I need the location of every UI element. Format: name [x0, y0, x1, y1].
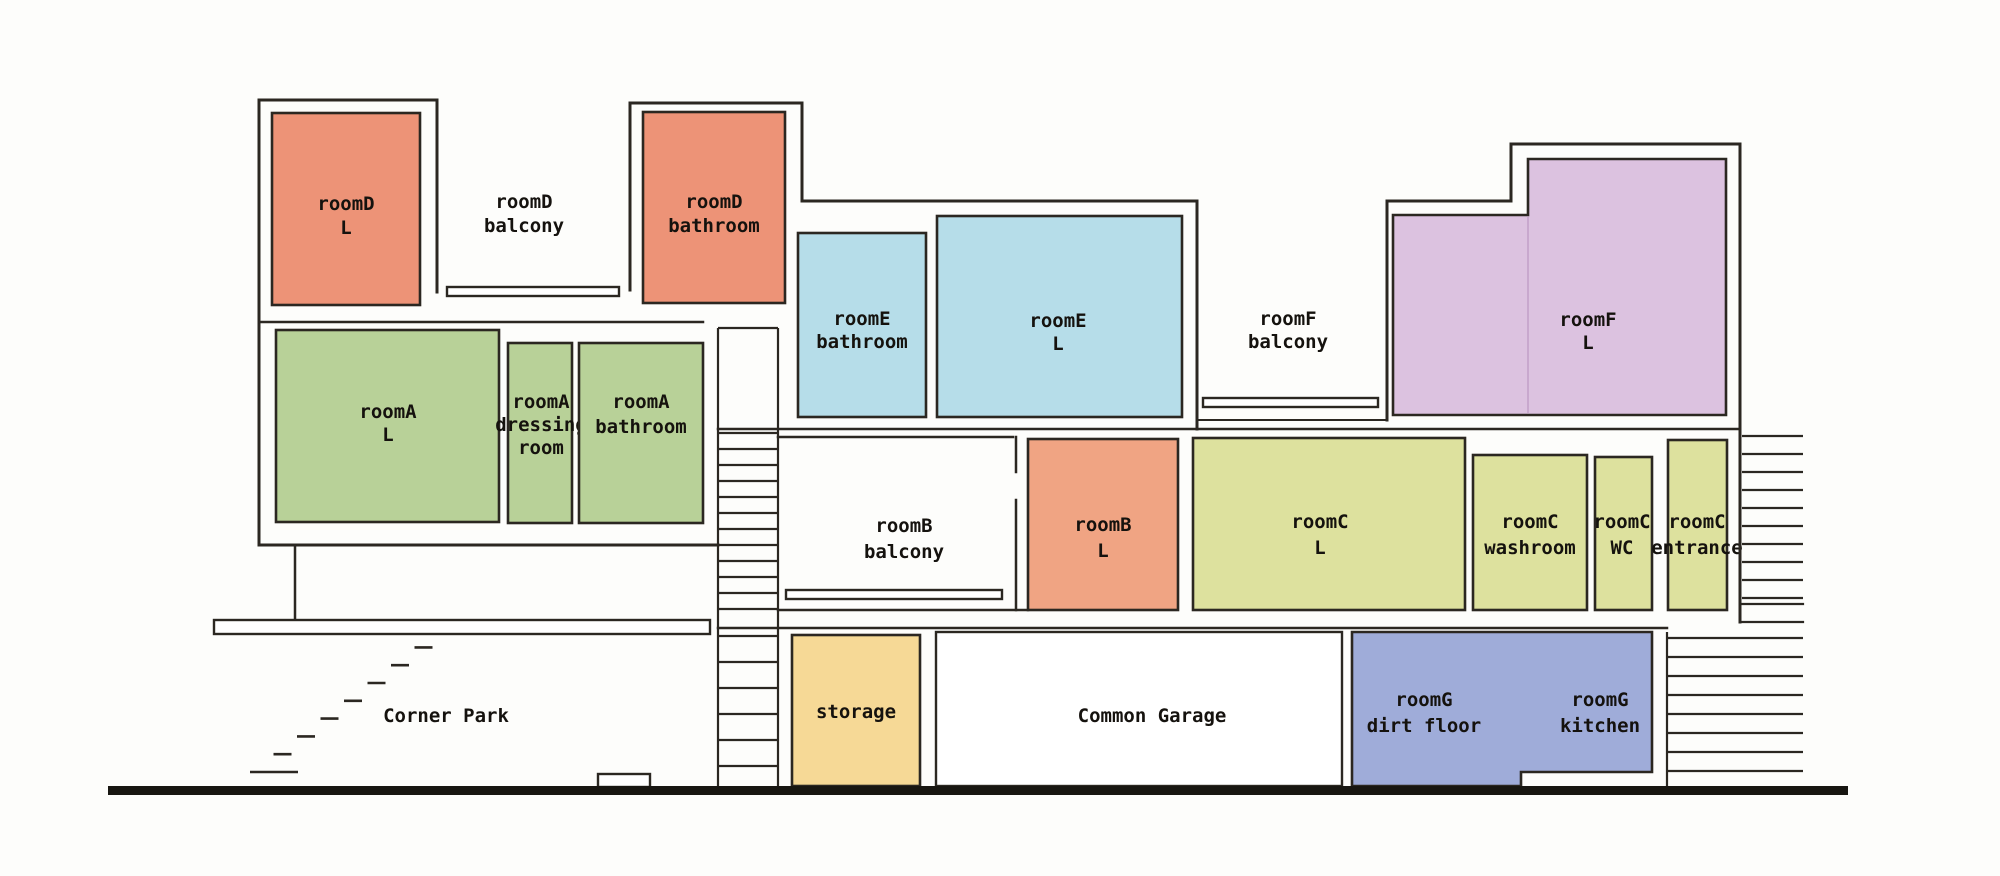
- room-roomC-washroom: roomCwashroom: [1473, 455, 1587, 610]
- room-roomF-L: roomFL: [1393, 159, 1726, 415]
- roomF-balcony-railing: [1203, 398, 1378, 407]
- floor-plan-svg: roomDLroomDbathroomroomALroomAdressingro…: [0, 0, 2000, 876]
- right-upper-stair: [1742, 436, 1803, 598]
- roomD-balcony-label: roomDbalcony: [484, 191, 564, 237]
- room-roomD-bathroom: roomDbathroom: [643, 112, 785, 303]
- central-stairwell: [718, 328, 778, 786]
- room-roomC-L: roomCL: [1193, 438, 1465, 610]
- room-roomE-L: roomEL: [937, 216, 1182, 417]
- room-roomA-bathroom: roomAbathroom: [579, 343, 703, 523]
- roomC-WC-area: [1595, 457, 1652, 610]
- room-roomA-dressing-room: roomAdressingroom: [495, 343, 587, 523]
- room-roomE-bathroom: roomEbathroom: [798, 233, 926, 417]
- corner-park-label: Corner Park: [383, 705, 509, 727]
- room-roomB-L: roomBL: [1028, 439, 1178, 610]
- entrance-step: [598, 774, 650, 787]
- corner-park-canopy: [214, 620, 710, 634]
- storage-label: storage: [816, 701, 896, 723]
- roomB-balcony-railing: [786, 590, 1002, 599]
- central-stairwell-lower-flight: [718, 636, 778, 766]
- roomB-balcony-label: roomBbalcony: [864, 515, 944, 563]
- right-stair-landing-lines: [1742, 604, 1803, 622]
- ground-line: [108, 786, 1848, 795]
- room-storage: storage: [792, 635, 920, 786]
- room-roomD-L: roomDL: [272, 113, 420, 305]
- room-roomC-WC: roomCWC: [1593, 457, 1652, 610]
- room-roomC-entrance: roomCentrance: [1651, 440, 1743, 610]
- roomF-L-area: [1393, 159, 1726, 415]
- roomF-balcony-label: roomFbalcony: [1248, 308, 1328, 353]
- common-garage-label: Common Garage: [1078, 705, 1227, 727]
- room-roomA-L: roomAL: [276, 330, 499, 522]
- right-lower-stair: [1667, 632, 1803, 786]
- roomD-balcony-railing: [447, 287, 619, 296]
